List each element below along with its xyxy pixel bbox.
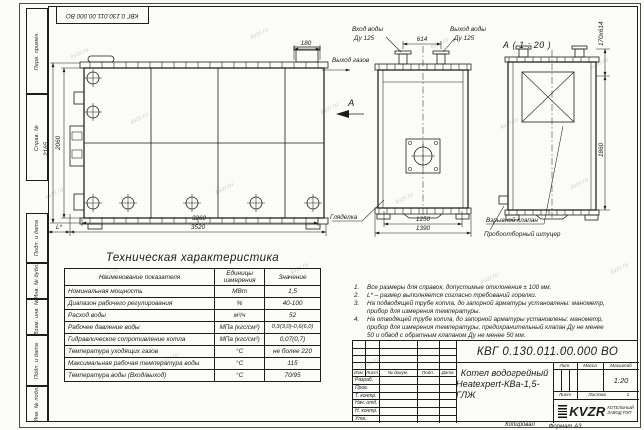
lit-label: Лит. [553,362,577,369]
param-name: Номинальная мощность [65,286,215,298]
col-ndokum: № докум. [379,369,417,376]
note-number: 1. [350,284,367,292]
note-item: 4.На отводящей трубе котла, до запорной … [350,316,612,340]
col-header-units: Единицы измерения [215,269,265,286]
param-name: Гидравлическое сопротивление котла [65,334,215,346]
row-razrab: Разраб. [353,376,379,384]
param-name: Диапазон рабочего регулирования [65,298,215,310]
top-doc-number: КВГ 0.130.011.00.000 ВО [66,12,138,19]
param-value: 1,5 [265,286,321,298]
sheets-count: 1 [617,391,639,399]
tech-characteristics: Техническая характеристика Наименование … [64,252,321,382]
logo-caption: КОТЕЛЬНЫЙ ЗАВОД РЭП [607,406,633,416]
doc-number: КВГ 0.130.011.00.000 ВО [456,341,639,362]
notes-list: 1.Все размеры для справок, допустимые от… [350,284,612,340]
stamp-label: Справ. № [34,124,40,150]
product-name-line2: Heatexpert-КВа-1,5-ГЛЖ [456,379,553,401]
param-unit: МПа (кгс/см²) [215,322,265,334]
note-number: 4. [350,316,367,340]
stamp-perv-primen: Перв. примен. [26,8,48,94]
param-name: Температура воды (Вход/выход) [65,370,215,382]
param-unit: °С [215,346,265,358]
drawing-sheet: kvzr.ru kvzr.ru kvzr.ru kvzr.ru kvzr.ru … [0,0,644,430]
row-nkontr: Н. контр. [353,407,379,415]
param-value: 70/95 [265,370,321,382]
table-row: Гидравлическое сопротивление котлаМПа (к… [65,334,321,346]
col-list: Лист [365,369,379,376]
tech-table-title: Техническая характеристика [64,252,321,264]
stamp-podp-data-2: Подп. и дата [26,335,48,386]
row-prov: Пров. [353,384,379,392]
mass-label: Масса [577,362,603,369]
param-value: 115 [265,358,321,370]
stamp-label: Подп. и дата [34,342,40,378]
param-value: 52 [265,310,321,322]
note-text: Все размеры для справок, допустимые откл… [367,284,551,292]
note-text: На подводящей трубе котла, до запорной а… [367,300,612,316]
sheets-label: Листов [577,391,617,399]
table-header-row: Наименование показателя Единицы измерени… [65,269,321,286]
logo-bars-icon [558,405,567,418]
note-item: 1.Все размеры для справок, допустимые от… [350,284,612,292]
table-row: Номинальная мощностьМВт1,5 [65,286,321,298]
param-unit: МВт [215,286,265,298]
row-nachotd: Нач. отд. [353,399,379,407]
col-izm: Изм. [353,369,365,376]
col-data: Дата [439,369,456,376]
param-unit: МПа (кгс/см²) [215,334,265,346]
tech-table: Наименование показателя Единицы измерени… [64,268,321,382]
manufacturer-logo: KVZR КОТЕЛЬНЫЙ ЗАВОД РЭП [553,399,639,423]
param-name: Температура уходящих газов [65,346,215,358]
scale-label: Масштаб [603,362,639,369]
param-value: не более 220 [265,346,321,358]
param-value: 0,3(3,0)-0,6(6,0) [265,322,321,334]
stamp-label: Инв. № подл. [34,386,40,422]
param-unit: °С [215,358,265,370]
stamp-label: Перв. примен. [34,32,40,70]
note-number: 2. [350,292,367,300]
stamp-sprav-no: Справ. № [26,94,48,181]
col-podp: Подп. [417,369,439,376]
stamp-label: Взам. инв. № [34,299,40,335]
sheet-label: Лист [553,391,577,399]
table-row: Расход водым³/ч52 [65,310,321,322]
title-block: Изм. Лист № докум. Подп. Дата Разраб. Пр… [352,340,638,422]
stamp-vzam-inv: Взам. инв. № [26,299,48,335]
stamp-inv-podl: Инв. № подл. [26,386,48,422]
row-tkontr: Т. контр. [353,392,379,399]
note-item: 3.На подводящей трубе котла, до запорной… [350,300,612,316]
note-text: На отводящей трубе котла, до запорной ар… [367,316,612,340]
param-unit: % [215,298,265,310]
product-name-line1: Котел водогрейный [461,368,548,379]
row-utv: Утв. [353,415,379,423]
stamp-inv-dubl: Инв. № дубл. [26,263,48,299]
note-number: 3. [350,300,367,316]
param-name: Рабочее давление воды [65,322,215,334]
table-row: Рабочее давление водыМПа (кгс/см²)0,3(3,… [65,322,321,334]
table-row: Диапазон рабочего регулирования%40-100 [65,298,321,310]
param-value: 40-100 [265,298,321,310]
scale-value: 1:20 [603,369,639,391]
table-row: Температура уходящих газов°Сне более 220 [65,346,321,358]
stamp-label: Подп. и дата [34,220,40,256]
logo-text: KVZR [569,404,605,419]
table-row: Максимальная рабочая температура воды°С1… [65,358,321,370]
param-value: 0,07(0,7) [265,334,321,346]
param-name: Максимальная рабочая температура воды [65,358,215,370]
top-doc-number-stamp: КВГ 0.130.011.00.000 ВО [56,6,149,24]
col-header-name: Наименование показателя [65,269,215,286]
col-header-value: Значение [265,269,321,286]
product-name: Котел водогрейный Heatexpert-КВа-1,5-ГЛЖ [456,362,553,407]
logo-caption-line2: ЗАВОД РЭП [607,411,633,416]
stamp-label: Инв. № дубл. [34,263,40,299]
param-unit: м³/ч [215,310,265,322]
param-unit: °С [215,370,265,382]
note-item: 2.L* – размер выполняется согласно требо… [350,292,612,300]
param-name: Расход воды [65,310,215,322]
table-row: Температура воды (Вход/выход)°С70/95 [65,370,321,382]
note-text: L* – размер выполняется согласно требова… [367,292,537,300]
stamp-podp-data-1: Подп. и дата [26,213,48,263]
format-label: Формат А3 [525,424,605,430]
